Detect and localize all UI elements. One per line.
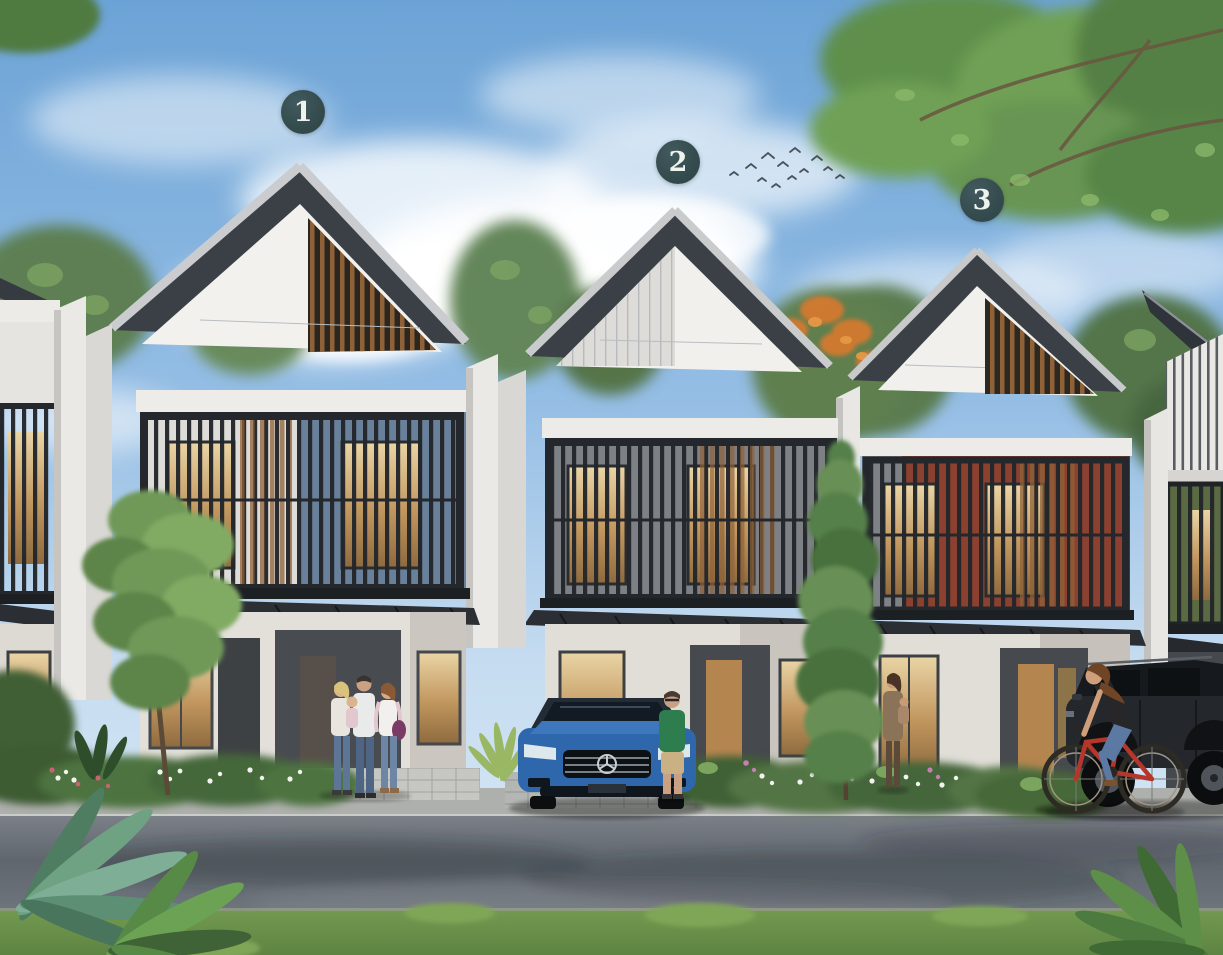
party-wall-fin-3-4 — [1144, 408, 1168, 700]
unit-marker-1[interactable]: 1 — [281, 90, 325, 134]
unit-marker-2-label: 2 — [669, 149, 688, 176]
unit-marker-3[interactable]: 3 — [960, 178, 1004, 222]
unit-marker-3-label: 3 — [973, 187, 992, 214]
townhouse-exterior-render: 1 2 3 — [0, 0, 1223, 955]
unit-marker-2[interactable]: 2 — [656, 140, 700, 184]
party-wall-fin-1-2 — [466, 354, 526, 648]
unit-marker-1-label: 1 — [294, 99, 313, 126]
render-graphic — [0, 0, 1223, 955]
